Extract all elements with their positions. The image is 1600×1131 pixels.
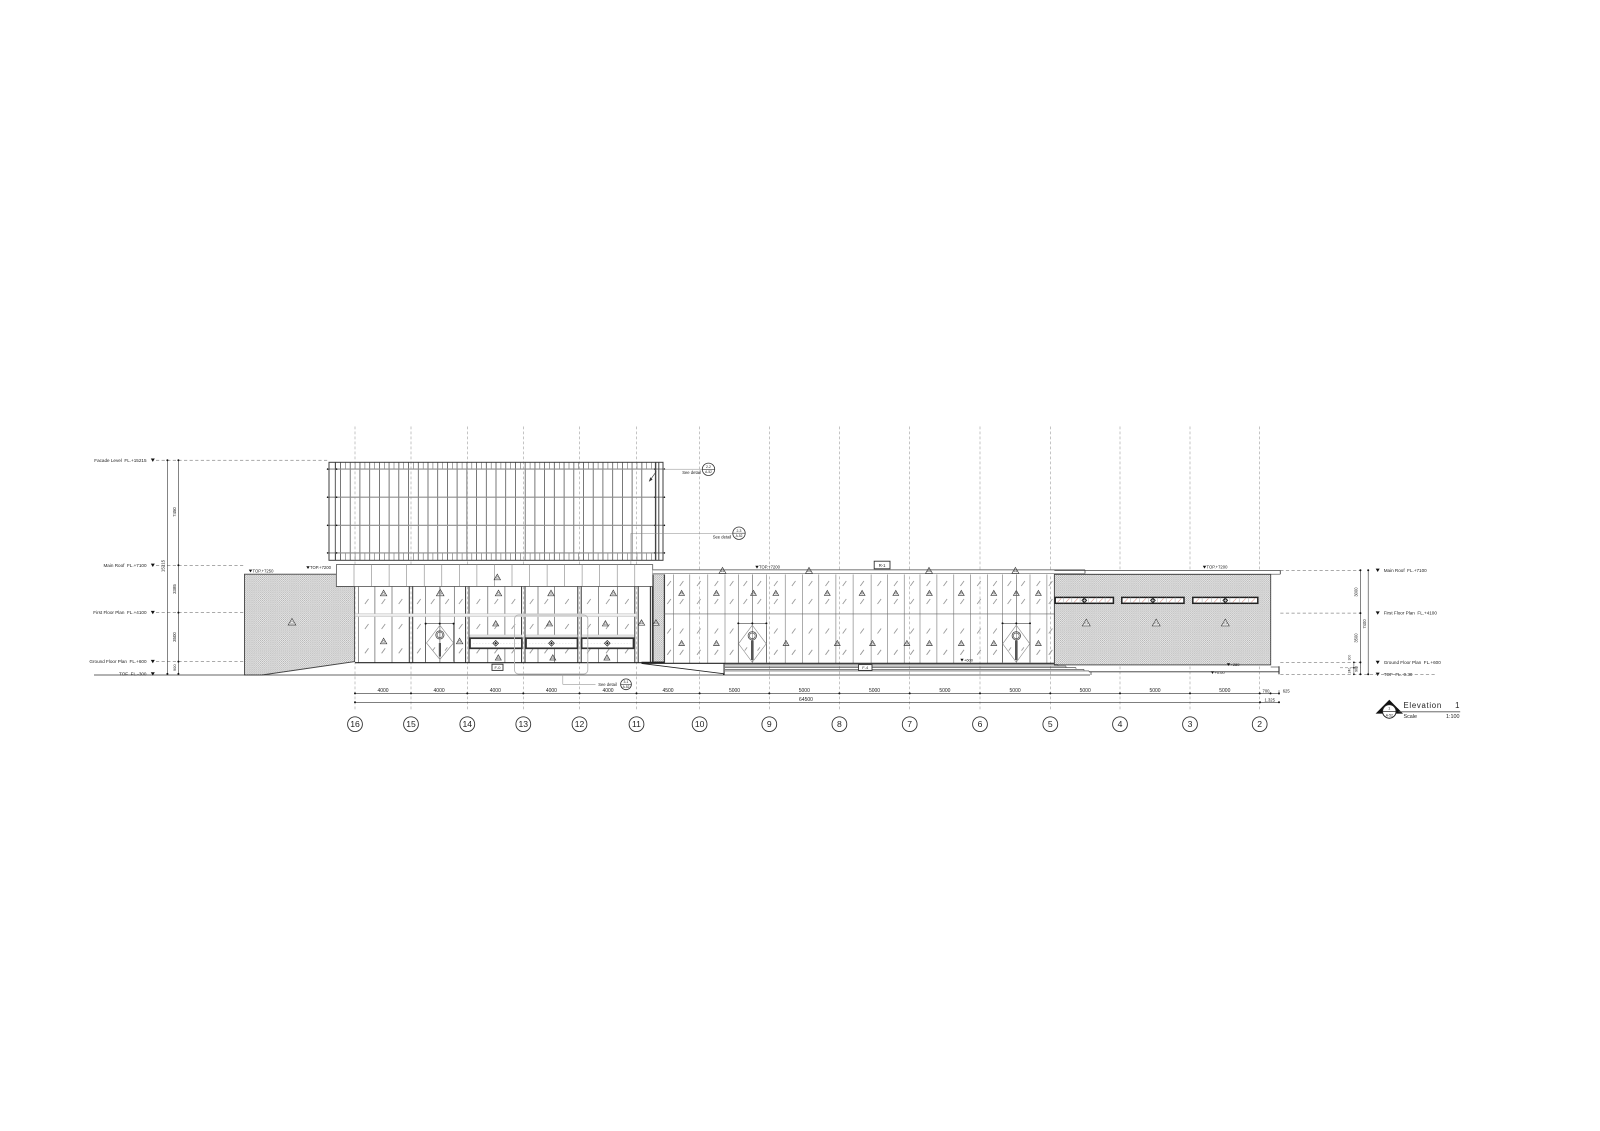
svg-text:First Floor Plan FL.+4100: First Floor Plan FL.+4100 [93,610,147,615]
svg-text:6: 6 [978,719,983,729]
svg-text:4000: 4000 [546,688,557,694]
svg-text:TOP.+7250: TOP.+7250 [253,568,275,573]
svg-text:Main Roof FL.+7100: Main Roof FL.+7100 [103,563,146,568]
svg-text:Facade Level FL.+15215: Facade Level FL.+15215 [94,458,147,463]
svg-text:5000: 5000 [1219,688,1230,694]
svg-text:Elevation: Elevation [1404,701,1442,710]
svg-text:3385: 3385 [172,584,177,594]
svg-text:5000: 5000 [1080,688,1091,694]
svg-text:7400: 7400 [1362,619,1367,629]
svg-text:3: 3 [1188,719,1193,729]
svg-text:R-1: R-1 [879,563,886,568]
svg-text:4000: 4000 [434,688,445,694]
svg-text:12: 12 [575,719,585,729]
svg-text:TOP.+7200: TOP.+7200 [1207,565,1229,570]
svg-text:5000: 5000 [799,688,810,694]
svg-text:300: 300 [1348,655,1352,661]
svg-text:+280: +280 [1231,662,1241,667]
svg-text:3500: 3500 [172,632,177,642]
svg-text:7: 7 [907,719,912,729]
svg-text:+0.00: +0.00 [1215,670,1226,675]
svg-text:1.325: 1.325 [1264,697,1275,702]
svg-text:Ground Floor Plan FL.+600: Ground Floor Plan FL.+600 [1384,660,1442,665]
svg-text:5000: 5000 [939,688,950,694]
svg-text:Ground Floor Plan FL.+600: Ground Floor Plan FL.+600 [89,659,147,664]
svg-text:3000: 3000 [1354,587,1359,597]
svg-text:1:100: 1:100 [1446,714,1460,720]
svg-text:1: 1 [1455,701,1459,710]
svg-text:A-52: A-52 [705,470,712,474]
svg-text:14: 14 [463,719,473,729]
svg-text:Scale: Scale [1404,714,1418,720]
svg-text:5000: 5000 [1149,688,1160,694]
svg-text:4000: 4000 [490,688,501,694]
svg-text:240: 240 [1348,668,1352,674]
svg-text:15: 15 [406,719,416,729]
svg-text:5: 5 [1048,719,1053,729]
svg-text:3-1: 3-1 [624,680,629,684]
svg-text:8: 8 [837,719,842,729]
svg-text:See detail: See detail [682,470,701,475]
svg-text:F-4: F-4 [862,665,869,670]
svg-text:16: 16 [350,719,360,729]
svg-text:5000: 5000 [869,688,880,694]
svg-text:10: 10 [695,719,705,729]
svg-text:TOP.+7200: TOP.+7200 [759,565,781,570]
svg-text:4000: 4000 [602,688,613,694]
svg-text:700: 700 [1263,688,1271,693]
svg-text:4500: 4500 [662,688,673,694]
svg-text:See detail: See detail [713,534,732,539]
svg-text:TOF FL.-300: TOF FL.-300 [119,672,147,677]
svg-text:A-52: A-52 [623,685,630,689]
svg-text:2-2: 2-2 [706,465,711,469]
svg-text:9: 9 [767,719,772,729]
svg-text:A-52: A-52 [1386,713,1393,717]
svg-text:5000: 5000 [1010,688,1021,694]
svg-text:F-0: F-0 [495,665,502,670]
svg-text:A-52: A-52 [736,534,743,538]
svg-text:3500: 3500 [1354,633,1359,643]
svg-text:11: 11 [632,719,641,729]
svg-text:7450: 7450 [172,507,177,517]
svg-text:Main Roof FL.+7100: Main Roof FL.+7100 [1384,568,1427,573]
svg-text:4000: 4000 [377,688,388,694]
svg-text:TOP.+7200: TOP.+7200 [310,565,332,570]
svg-text:See detail: See detail [598,682,617,687]
svg-text:900: 900 [1355,666,1359,672]
svg-text:2-3: 2-3 [737,529,742,533]
svg-text:4: 4 [1118,719,1123,729]
svg-text:+600: +600 [964,658,974,663]
svg-text:13: 13 [519,719,529,729]
svg-text:15215: 15215 [161,559,166,572]
svg-text:625: 625 [1283,688,1291,693]
svg-text:First Floor Plan FL.+4100: First Floor Plan FL.+4100 [1384,611,1438,616]
svg-text:64500: 64500 [799,697,813,703]
svg-text:900: 900 [172,664,177,671]
svg-text:5000: 5000 [729,688,740,694]
svg-text:2: 2 [1257,719,1262,729]
